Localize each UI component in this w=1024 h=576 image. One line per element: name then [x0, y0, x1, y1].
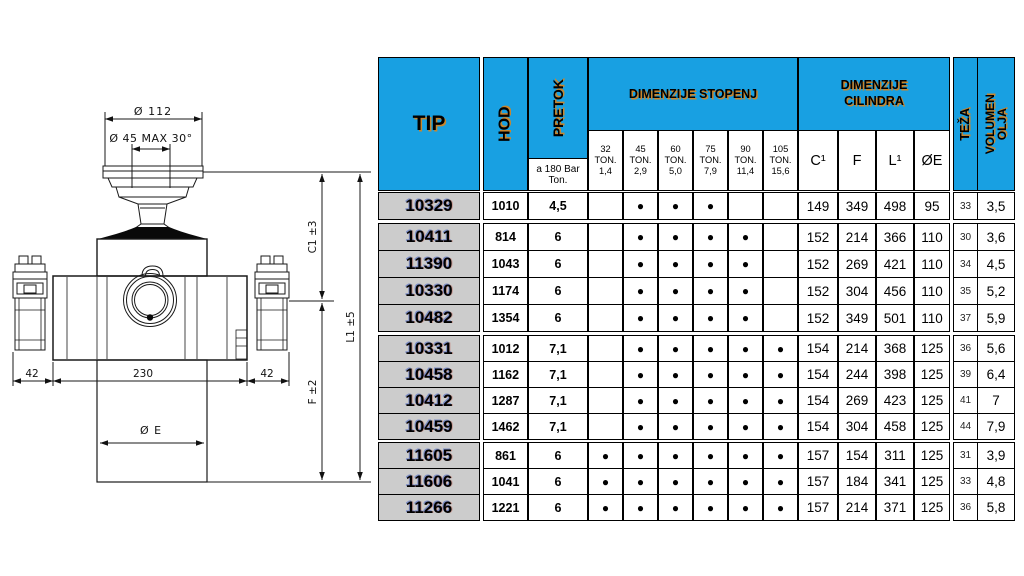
- stage-dot-cell: ●: [693, 413, 728, 440]
- tip-cell: 10331: [378, 335, 480, 362]
- col-header-hod-label: HOD: [497, 106, 513, 142]
- stage-dot-cell: ●: [728, 442, 763, 469]
- pretok-cell: 7,1: [528, 413, 588, 440]
- stage-dot-cell: [763, 304, 798, 332]
- l1-cell: 458: [876, 413, 914, 440]
- oe-cell: 125: [914, 387, 950, 414]
- stage-dot-cell: ●: [693, 277, 728, 305]
- hod-cell: 1354: [483, 304, 528, 332]
- volumen-cell: 3,9: [977, 442, 1015, 469]
- tip-cell: 10329: [378, 192, 480, 220]
- ton-col-header: 60TON.5,0: [658, 130, 693, 191]
- l1-cell: 456: [876, 277, 914, 305]
- oe-cell: 95: [914, 192, 950, 220]
- ton-col-header: 45TON.2,9: [623, 130, 658, 191]
- stage-dot-cell: [763, 277, 798, 305]
- datasheet-page: Ø 112 Ø 45 MAX 30° 42 230 42 Ø E C1 ±3 F…: [0, 0, 1024, 576]
- oe-cell: 125: [914, 335, 950, 362]
- c1-cell: 157: [798, 468, 838, 495]
- stage-dot-cell: [588, 250, 623, 278]
- stage-dot-cell: ●: [623, 335, 658, 362]
- ton-col-header: 32TON.1,4: [588, 130, 623, 191]
- f-cell: 304: [838, 277, 876, 305]
- dim-label-cyl-diameter: Ø E: [140, 424, 162, 437]
- teza-cell: 36: [953, 335, 978, 362]
- stage-dot-cell: ●: [658, 442, 693, 469]
- teza-label: TEŽA: [959, 108, 972, 141]
- volumen-cell: 5,2: [977, 277, 1015, 305]
- stage-dot-cell: ●: [658, 361, 693, 388]
- ton-col-header: 105TON.15,6: [763, 130, 798, 191]
- ton-col-header: 90TON.11,4: [728, 130, 763, 191]
- teza-cell: 33: [953, 468, 978, 495]
- oe-cell: 110: [914, 250, 950, 278]
- stage-dot-cell: [588, 192, 623, 220]
- stage-dot-cell: ●: [658, 494, 693, 521]
- volumen-label: VOLUMENOLJA: [984, 94, 1008, 154]
- stage-dot-cell: ●: [623, 304, 658, 332]
- hod-cell: 1287: [483, 387, 528, 414]
- stage-dot-cell: ●: [623, 468, 658, 495]
- pretok-cell: 6: [528, 442, 588, 469]
- oe-cell: 125: [914, 361, 950, 388]
- cilindra-col-header: L¹: [876, 130, 914, 191]
- stage-dot-cell: ●: [728, 494, 763, 521]
- f-cell: 269: [838, 387, 876, 414]
- stage-dot-cell: ●: [658, 192, 693, 220]
- col-header-teza: TEŽA: [953, 57, 978, 191]
- stage-dot-cell: ●: [728, 413, 763, 440]
- teza-cell: 44: [953, 413, 978, 440]
- stage-dot-cell: ●: [763, 494, 798, 521]
- stage-dot-cell: ●: [588, 442, 623, 469]
- c1-cell: 154: [798, 387, 838, 414]
- f-cell: 214: [838, 494, 876, 521]
- tip-cell: 11606: [378, 468, 480, 495]
- c1-cell: 149: [798, 192, 838, 220]
- ton-col-header: 75TON.7,9: [693, 130, 728, 191]
- f-cell: 244: [838, 361, 876, 388]
- volumen-cell: 5,6: [977, 335, 1015, 362]
- pretok-cell: 6: [528, 468, 588, 495]
- l1-cell: 366: [876, 223, 914, 251]
- teza-cell: 31: [953, 442, 978, 469]
- oe-cell: 125: [914, 413, 950, 440]
- tip-cell: 11266: [378, 494, 480, 521]
- stage-dot-cell: ●: [728, 387, 763, 414]
- spec-table: TIP HOD PRETOK a 180 Bar Ton. DIMENZIJE …: [378, 57, 1017, 522]
- teza-cell: 34: [953, 250, 978, 278]
- stage-dot-cell: ●: [728, 223, 763, 251]
- stage-dot-cell: [763, 250, 798, 278]
- stage-dot-cell: ●: [728, 361, 763, 388]
- l1-cell: 311: [876, 442, 914, 469]
- f-cell: 214: [838, 223, 876, 251]
- hod-cell: 1162: [483, 361, 528, 388]
- stage-dot-cell: ●: [623, 192, 658, 220]
- pretok-cell: 6: [528, 223, 588, 251]
- dim-label-ball: Ø 45 MAX 30°: [109, 132, 192, 145]
- stage-dot-cell: ●: [728, 277, 763, 305]
- stage-dot-cell: ●: [693, 192, 728, 220]
- stage-dot-cell: [588, 335, 623, 362]
- c1-cell: 152: [798, 223, 838, 251]
- f-cell: 349: [838, 304, 876, 332]
- hod-cell: 1012: [483, 335, 528, 362]
- hod-cell: 814: [483, 223, 528, 251]
- c1-cell: 152: [798, 304, 838, 332]
- c1-cell: 152: [798, 250, 838, 278]
- oe-cell: 110: [914, 223, 950, 251]
- stage-dot-cell: ●: [658, 387, 693, 414]
- pretok-cell: 7,1: [528, 387, 588, 414]
- stopenj-title: DIMENZIJE STOPENJ: [629, 87, 757, 101]
- c1-cell: 154: [798, 413, 838, 440]
- tip-cell: 11605: [378, 442, 480, 469]
- pretok-cell: 6: [528, 494, 588, 521]
- l1-cell: 368: [876, 335, 914, 362]
- stage-dot-cell: [588, 361, 623, 388]
- stage-dot-cell: ●: [623, 413, 658, 440]
- stage-dot-cell: [588, 277, 623, 305]
- col-header-pretok-label: PRETOK: [551, 79, 565, 137]
- stage-dot-cell: ●: [623, 387, 658, 414]
- volumen-cell: 7,9: [977, 413, 1015, 440]
- c1-cell: 152: [798, 277, 838, 305]
- pretok-cell: 4,5: [528, 192, 588, 220]
- col-header-hod: HOD: [483, 57, 528, 191]
- hod-cell: 1010: [483, 192, 528, 220]
- tip-cell: 10458: [378, 361, 480, 388]
- stage-dot-cell: ●: [763, 442, 798, 469]
- pretok-cell: 6: [528, 304, 588, 332]
- col-header-pretok: PRETOK: [528, 57, 588, 159]
- teza-cell: 30: [953, 223, 978, 251]
- f-cell: 269: [838, 250, 876, 278]
- pretok-sub-label: a 180 Bar Ton.: [532, 164, 584, 186]
- oe-cell: 110: [914, 277, 950, 305]
- l1-cell: 498: [876, 192, 914, 220]
- stage-dot-cell: ●: [588, 468, 623, 495]
- l1-cell: 398: [876, 361, 914, 388]
- tip-cell: 10330: [378, 277, 480, 305]
- hod-cell: 1174: [483, 277, 528, 305]
- dim-label-l1: L1 ±5: [345, 311, 357, 342]
- stage-dot-cell: [588, 413, 623, 440]
- oe-cell: 125: [914, 442, 950, 469]
- f-cell: 349: [838, 192, 876, 220]
- dim-label-top-diameter: Ø 112: [134, 105, 172, 118]
- stage-dot-cell: ●: [623, 361, 658, 388]
- dim-label-42-right: 42: [260, 368, 273, 380]
- stage-dot-cell: [588, 223, 623, 251]
- stage-dot-cell: ●: [763, 413, 798, 440]
- cylinder-technical-drawing: Ø 112 Ø 45 MAX 30° 42 230 42 Ø E C1 ±3 F…: [0, 0, 378, 576]
- teza-cell: 33: [953, 192, 978, 220]
- stage-dot-cell: ●: [728, 304, 763, 332]
- stage-dot-cell: ●: [658, 277, 693, 305]
- f-cell: 214: [838, 335, 876, 362]
- group-header-cilindra: DIMENZIJE CILINDRA: [798, 57, 950, 131]
- oe-cell: 125: [914, 468, 950, 495]
- l1-cell: 421: [876, 250, 914, 278]
- l1-cell: 423: [876, 387, 914, 414]
- tip-cell: 11390: [378, 250, 480, 278]
- f-cell: 184: [838, 468, 876, 495]
- oe-cell: 110: [914, 304, 950, 332]
- stage-dot-cell: ●: [693, 361, 728, 388]
- col-header-volumen: VOLUMENOLJA: [977, 57, 1015, 191]
- stage-dot-cell: ●: [658, 304, 693, 332]
- dim-label-42-left: 42: [25, 368, 38, 380]
- col-header-pretok-sub: a 180 Bar Ton.: [528, 158, 588, 191]
- stage-dot-cell: ●: [658, 223, 693, 251]
- stage-dot-cell: ●: [693, 304, 728, 332]
- cilindra-col-header: C¹: [798, 130, 838, 191]
- tip-cell: 10482: [378, 304, 480, 332]
- volumen-cell: 6,4: [977, 361, 1015, 388]
- tip-cell: 10411: [378, 223, 480, 251]
- volumen-cell: 7: [977, 387, 1015, 414]
- volumen-cell: 3,5: [977, 192, 1015, 220]
- teza-cell: 39: [953, 361, 978, 388]
- stage-dot-cell: ●: [658, 468, 693, 495]
- stage-dot-cell: ●: [693, 223, 728, 251]
- group-header-stopenj: DIMENZIJE STOPENJ: [588, 57, 798, 131]
- c1-cell: 154: [798, 335, 838, 362]
- col-header-tip: TIP: [378, 57, 480, 191]
- l1-cell: 371: [876, 494, 914, 521]
- stage-dot-cell: ●: [728, 250, 763, 278]
- dim-label-c1: C1 ±3: [307, 221, 319, 254]
- teza-cell: 41: [953, 387, 978, 414]
- hod-cell: 861: [483, 442, 528, 469]
- stage-dot-cell: [728, 192, 763, 220]
- dim-label-230: 230: [133, 368, 153, 380]
- stage-dot-cell: ●: [693, 468, 728, 495]
- teza-cell: 37: [953, 304, 978, 332]
- pretok-cell: 6: [528, 277, 588, 305]
- hod-cell: 1043: [483, 250, 528, 278]
- teza-cell: 35: [953, 277, 978, 305]
- stage-dot-cell: ●: [623, 442, 658, 469]
- c1-cell: 157: [798, 442, 838, 469]
- hod-cell: 1041: [483, 468, 528, 495]
- stage-dot-cell: ●: [693, 335, 728, 362]
- stage-dot-cell: [588, 304, 623, 332]
- hod-cell: 1221: [483, 494, 528, 521]
- dim-label-f: F ±2: [307, 380, 319, 405]
- oe-cell: 125: [914, 494, 950, 521]
- stage-dot-cell: ●: [763, 387, 798, 414]
- stage-dot-cell: ●: [623, 223, 658, 251]
- pretok-cell: 7,1: [528, 335, 588, 362]
- l1-cell: 501: [876, 304, 914, 332]
- cilindra-title: DIMENZIJE CILINDRA: [824, 78, 924, 109]
- c1-cell: 157: [798, 494, 838, 521]
- cilindra-col-header: ØE: [914, 130, 950, 191]
- stage-dot-cell: [588, 387, 623, 414]
- stage-dot-cell: ●: [588, 494, 623, 521]
- stage-dot-cell: ●: [693, 494, 728, 521]
- stage-dot-cell: ●: [623, 494, 658, 521]
- c1-cell: 154: [798, 361, 838, 388]
- stage-dot-cell: ●: [693, 250, 728, 278]
- teza-cell: 36: [953, 494, 978, 521]
- stage-dot-cell: ●: [658, 250, 693, 278]
- l1-cell: 341: [876, 468, 914, 495]
- stage-dot-cell: ●: [693, 442, 728, 469]
- stage-dot-cell: ●: [658, 413, 693, 440]
- pretok-cell: 7,1: [528, 361, 588, 388]
- f-cell: 154: [838, 442, 876, 469]
- stage-dot-cell: ●: [623, 277, 658, 305]
- stage-dot-cell: [763, 192, 798, 220]
- stage-dot-cell: [763, 223, 798, 251]
- col-header-tip-label: TIP: [413, 112, 446, 136]
- cilindra-col-header: F: [838, 130, 876, 191]
- stage-dot-cell: ●: [623, 250, 658, 278]
- tip-cell: 10459: [378, 413, 480, 440]
- volumen-cell: 4,5: [977, 250, 1015, 278]
- volumen-cell: 5,8: [977, 494, 1015, 521]
- stage-dot-cell: ●: [728, 468, 763, 495]
- volumen-cell: 4,8: [977, 468, 1015, 495]
- stage-dot-cell: ●: [763, 468, 798, 495]
- f-cell: 304: [838, 413, 876, 440]
- stage-dot-cell: ●: [693, 387, 728, 414]
- stage-dot-cell: ●: [763, 335, 798, 362]
- hod-cell: 1462: [483, 413, 528, 440]
- tip-cell: 10412: [378, 387, 480, 414]
- volumen-cell: 3,6: [977, 223, 1015, 251]
- volumen-cell: 5,9: [977, 304, 1015, 332]
- stage-dot-cell: ●: [658, 335, 693, 362]
- stage-dot-cell: ●: [728, 335, 763, 362]
- pretok-cell: 6: [528, 250, 588, 278]
- stage-dot-cell: ●: [763, 361, 798, 388]
